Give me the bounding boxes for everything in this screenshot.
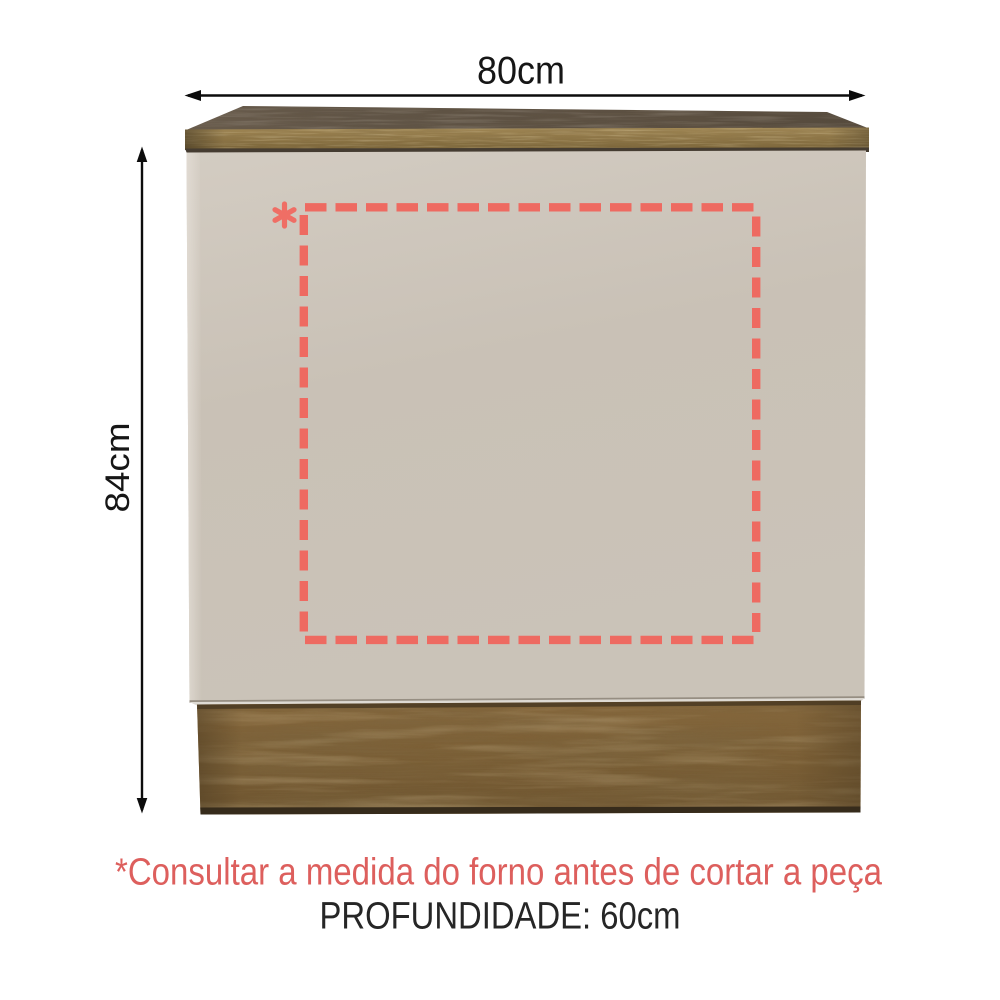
svg-text:PROFUNDIDADE: 60cm: PROFUNDIDADE: 60cm — [320, 896, 681, 938]
svg-text:*Consultar a medida do forno a: *Consultar a medida do forno antes de co… — [115, 852, 883, 894]
svg-text:84cm: 84cm — [99, 423, 137, 513]
svg-text:80cm: 80cm — [477, 50, 565, 93]
